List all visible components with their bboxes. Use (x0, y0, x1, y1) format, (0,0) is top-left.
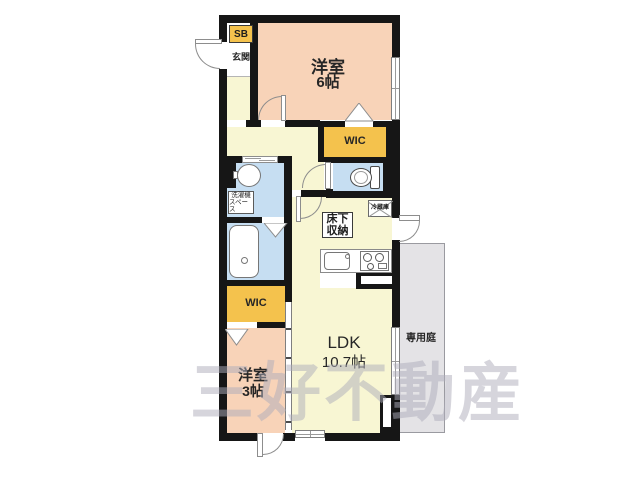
kitchen-return-slot (361, 276, 392, 284)
wall-bedroom6-bottom-b (285, 120, 320, 127)
bedroom3-sliding-partition (285, 302, 292, 430)
washbasin-icon (237, 164, 261, 187)
laundry-space-line2: スペース (229, 199, 253, 213)
folding-door-triangle-icon (264, 223, 288, 238)
wall-right-upper (392, 15, 400, 57)
ldk-door-leaf (296, 196, 301, 222)
wall-corridor-ldk (301, 190, 333, 197)
entrance-label: 玄関 (232, 50, 250, 63)
slider-tick (286, 421, 291, 423)
wall-bottom-left (219, 433, 260, 441)
slider-tick (286, 328, 291, 330)
window-glass-line (296, 434, 324, 435)
slider-tick (286, 391, 291, 393)
kitchen-counter-return (320, 273, 356, 288)
bathtub-drain-icon (241, 257, 248, 264)
corner-post-slot (383, 398, 391, 427)
stove-burner-icon (363, 253, 372, 262)
shoebox-symbol: SB (229, 25, 253, 43)
entrance-door-leaf (195, 39, 222, 44)
window-ldk-bottom (295, 430, 325, 438)
garden-door-arc (399, 221, 420, 242)
underfloor-storage-box: 床下 収納 (322, 212, 353, 238)
wall-right-mid (392, 120, 400, 218)
terrace-door-leaf (257, 433, 263, 457)
folding-door-triangle-icon (225, 329, 249, 346)
ldk-size: 10.7帖 (322, 351, 366, 372)
bathtub-icon (229, 225, 259, 278)
wall-bedroom6-bottom-a (246, 120, 261, 127)
wall-bottom-right (325, 433, 400, 441)
window-glass-line (395, 328, 396, 394)
window-ldk-right (391, 327, 400, 395)
garden-door-leaf (399, 215, 420, 221)
hallway-floor (227, 127, 318, 156)
underfloor-storage-line1: 床下 (327, 213, 349, 225)
wall-washroom-right (284, 156, 292, 286)
slider-tick (286, 357, 291, 359)
laundry-space-box: 洗濯機 スペース (228, 191, 254, 214)
toilet-seat-icon (354, 171, 368, 184)
refrigerator-symbol: 冷蔵庫 (368, 200, 392, 217)
stove-grill-icon (378, 263, 387, 269)
entrance-hall-floor (227, 77, 250, 120)
bedroom6-size: 6帖 (316, 71, 339, 92)
wall-top (219, 15, 400, 23)
bedroom6-door-gap (261, 120, 285, 127)
toilet-door-leaf (325, 162, 331, 189)
floorplan-canvas: 冷蔵庫 床下 収納 洗濯機 スペース SB 玄関 洋室 6帖 WIC LDK 1… (0, 0, 640, 480)
entrance-door-gap (219, 42, 227, 69)
wic-south-door-gap (227, 322, 257, 328)
underfloor-storage-line2: 収納 (327, 225, 349, 237)
washroom-sliding-door (242, 156, 278, 163)
bedroom3-size: 3帖 (242, 381, 264, 401)
wall-washroom-bath (227, 217, 262, 223)
stove-burner-icon (367, 263, 374, 270)
laundry-space-line1: 洗濯機 (231, 192, 251, 199)
entrance-door-arc (195, 44, 220, 69)
wall-left (219, 15, 227, 441)
kitchen-faucet-icon (345, 254, 350, 259)
folding-door-triangle-icon (345, 103, 374, 122)
stove-burner-icon (375, 253, 384, 262)
slider-stub (285, 286, 292, 302)
shoebox-label: SB (234, 29, 248, 40)
wic-north-label: WIC (344, 135, 365, 147)
ldk-name: LDK (327, 333, 360, 353)
garden-label: 専用庭 (406, 329, 436, 344)
window-glass-line (395, 58, 396, 119)
refrigerator-label: 冷蔵庫 (371, 205, 389, 212)
washbasin-tap-icon (233, 171, 238, 179)
sliding-door-line (259, 160, 275, 161)
wall-bottom-stub (283, 433, 295, 441)
sliding-door-line (245, 158, 261, 159)
entrance-step-line (227, 76, 250, 77)
terrace-door-arc (263, 434, 284, 455)
window-bedroom6 (391, 57, 400, 120)
wic-south-label: WIC (245, 297, 266, 309)
bedroom6-door-leaf (281, 95, 286, 121)
